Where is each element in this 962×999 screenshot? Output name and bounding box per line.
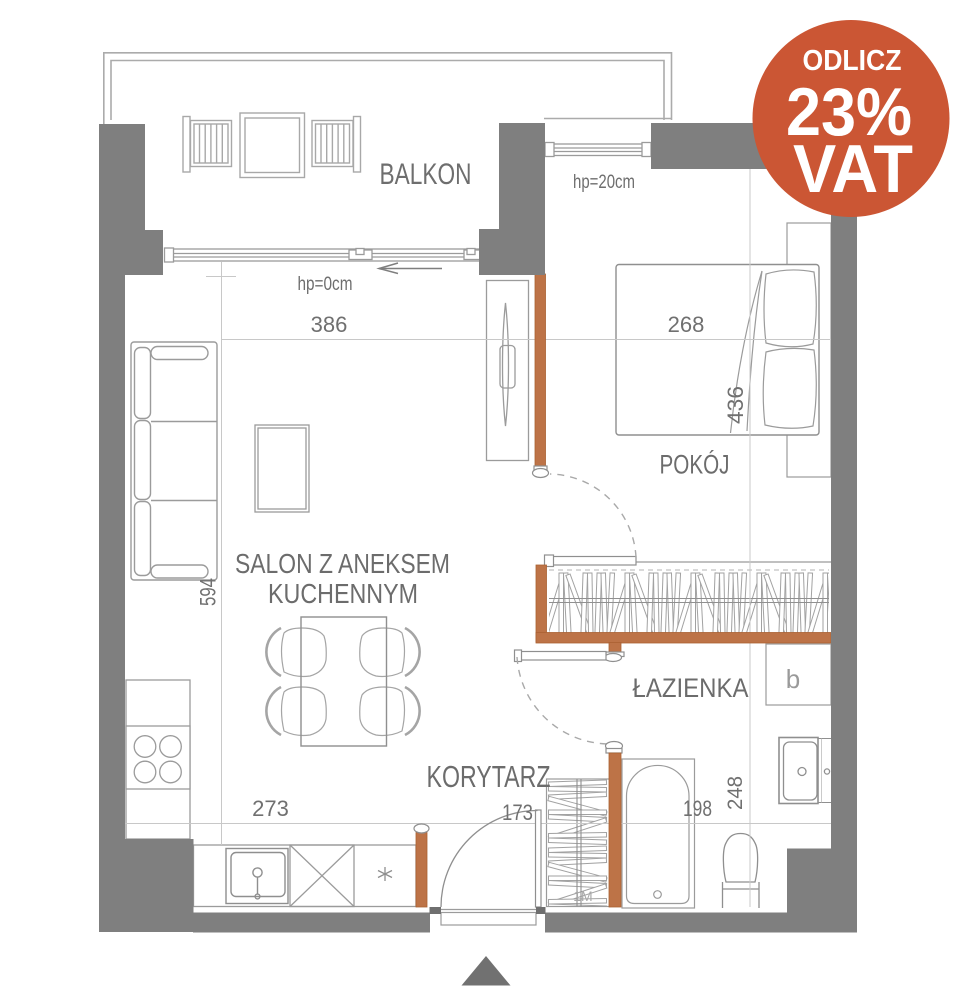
svg-text:198: 198 (683, 796, 712, 821)
svg-text:hp=20cm: hp=20cm (573, 172, 635, 193)
svg-text:436: 436 (723, 386, 748, 424)
svg-text:b: b (786, 664, 800, 694)
svg-text:VAT: VAT (793, 131, 913, 207)
svg-text:1M: 1M (573, 888, 592, 904)
svg-text:hp=0cm: hp=0cm (298, 274, 353, 295)
svg-text:KUCHENNYM: KUCHENNYM (268, 578, 418, 609)
svg-text:386: 386 (311, 312, 348, 337)
svg-text:ŁAZIENKA: ŁAZIENKA (633, 673, 749, 703)
svg-text:248: 248 (724, 776, 747, 810)
svg-text:BALKON: BALKON (380, 158, 472, 191)
svg-text:KORYTARZ: KORYTARZ (427, 759, 551, 794)
svg-text:594: 594 (196, 578, 221, 606)
svg-text:273: 273 (252, 796, 289, 821)
svg-text:268: 268 (668, 312, 705, 337)
svg-text:ODLICZ: ODLICZ (803, 45, 902, 77)
svg-text:173: 173 (502, 800, 533, 825)
svg-text:SALON Z ANEKSEM: SALON Z ANEKSEM (235, 548, 450, 579)
svg-text:POKÓJ: POKÓJ (660, 449, 730, 480)
